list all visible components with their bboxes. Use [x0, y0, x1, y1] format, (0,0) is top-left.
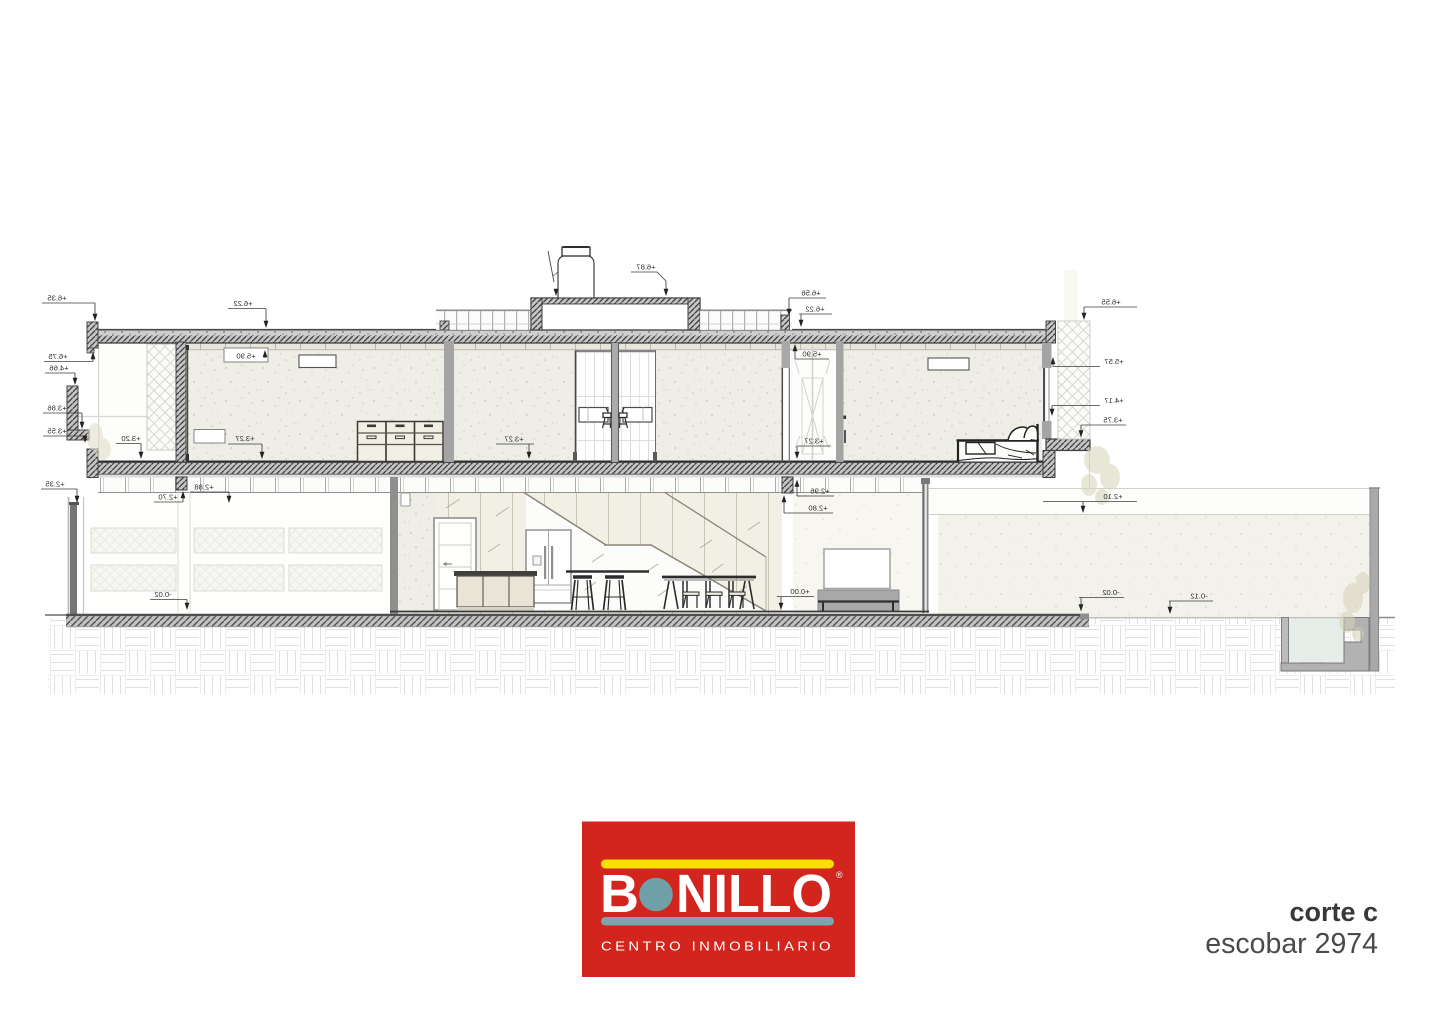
svg-text:+2.70: +2.70 — [158, 493, 177, 502]
svg-text:-0.12: -0.12 — [1190, 592, 1207, 601]
svg-text:+3.27: +3.27 — [504, 435, 523, 444]
svg-text:+2.80: +2.80 — [808, 504, 827, 513]
svg-text:+5.57: +5.57 — [1104, 357, 1123, 366]
svg-text:CENTRO INMOBILIARIO: CENTRO INMOBILIARIO — [601, 939, 834, 954]
svg-text:+6.87: +6.87 — [636, 263, 655, 272]
svg-text:NILLO: NILLO — [676, 864, 832, 924]
svg-text:+2.96: +2.96 — [810, 487, 829, 496]
svg-text:-0.02: -0.02 — [1102, 588, 1119, 597]
svg-text:+2.88: +2.88 — [194, 483, 213, 492]
svg-text:+3.27: +3.27 — [235, 434, 254, 443]
svg-text:+4.66: +4.66 — [49, 364, 68, 373]
svg-text:+0.00: +0.00 — [790, 587, 809, 596]
svg-text:+5.90: +5.90 — [236, 352, 255, 361]
svg-text:+6.55: +6.55 — [1101, 298, 1120, 307]
svg-text:+6.35: +6.35 — [47, 294, 66, 303]
svg-text:+3.86: +3.86 — [47, 404, 66, 413]
svg-text:-0.02: -0.02 — [154, 590, 171, 599]
svg-text:+6.75: +6.75 — [48, 352, 67, 361]
svg-text:corte c: corte c — [1289, 897, 1378, 927]
svg-text:+3.27: +3.27 — [804, 437, 823, 446]
svg-text:+3.20: +3.20 — [121, 434, 140, 443]
svg-text:+3.75: +3.75 — [1103, 416, 1122, 425]
svg-text:+6.56: +6.56 — [801, 289, 820, 298]
svg-text:+3.55: +3.55 — [47, 427, 66, 436]
svg-text:+2.35: +2.35 — [45, 480, 64, 489]
svg-text:+6.22: +6.22 — [233, 299, 252, 308]
svg-text:+6.22: +6.22 — [805, 305, 824, 314]
svg-text:+5.90: +5.90 — [802, 350, 821, 359]
svg-text:+4.17: +4.17 — [1104, 396, 1123, 405]
svg-text:+2.10: +2.10 — [1103, 492, 1122, 501]
svg-text:B: B — [600, 864, 639, 924]
svg-text:escobar 2974: escobar 2974 — [1205, 928, 1378, 960]
svg-text:®: ® — [836, 870, 843, 880]
